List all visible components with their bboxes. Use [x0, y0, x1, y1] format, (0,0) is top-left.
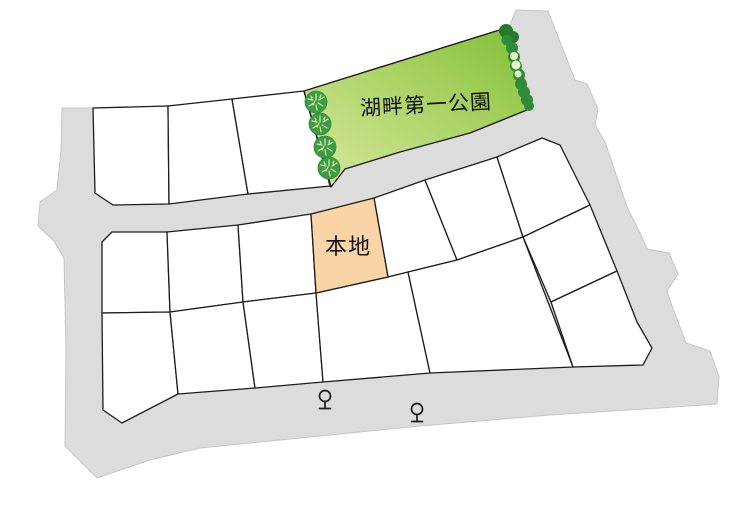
lot [93, 106, 169, 205]
lot [170, 302, 255, 394]
subject-lot-label: 本地 [325, 235, 371, 260]
site-plan-screen: 湖畔第一公園 本地 [0, 0, 729, 516]
lot [167, 225, 243, 312]
park-tree-icon [309, 113, 331, 135]
lot [238, 214, 316, 302]
lot [243, 293, 323, 388]
park-tree-icon [314, 136, 336, 158]
park-tree-icon [305, 91, 327, 113]
park-tree-icon [318, 157, 340, 179]
lot [102, 232, 170, 313]
subject-lot: 本地 [311, 198, 388, 293]
site-plan-map: 湖畔第一公園 本地 [0, 0, 729, 516]
